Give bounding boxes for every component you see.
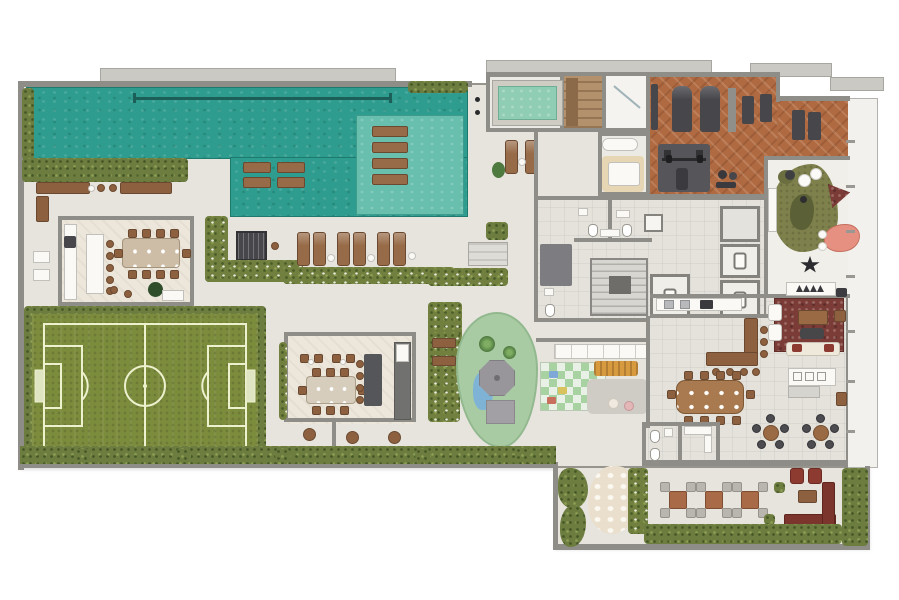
dining-table (306, 376, 356, 404)
kids-chair (818, 230, 827, 239)
sofa-cushion (792, 344, 802, 352)
in-pool-lounger (277, 177, 305, 188)
ball-pit-bench (594, 361, 638, 376)
elevator-shaft (720, 206, 760, 242)
wall (412, 332, 416, 422)
ottoman (800, 328, 824, 339)
fireplace-console (786, 282, 836, 296)
hedge-bush (275, 448, 291, 462)
kitchen-island (364, 354, 382, 406)
chair (775, 440, 784, 449)
pouf (109, 184, 117, 192)
wall (716, 422, 720, 466)
lounger-side-table (408, 252, 416, 260)
island-stool (356, 384, 364, 392)
banquet-table (676, 380, 744, 414)
chair (836, 392, 847, 406)
dining-chair (667, 390, 676, 399)
wood-planter (432, 338, 456, 348)
wall (642, 422, 646, 466)
terrace-table (705, 491, 723, 509)
round-table-group (802, 414, 840, 452)
island-stool (106, 276, 114, 284)
in-pool-lounger (277, 162, 305, 173)
fire-table (798, 490, 817, 503)
lane-end-mark (133, 93, 136, 103)
outdoor-shower-head (475, 97, 480, 102)
in-pool-lounger (372, 126, 408, 137)
terrace-chair (722, 508, 732, 518)
window-mullion (846, 430, 855, 433)
terrace-table (741, 491, 759, 509)
barbell-plate (697, 155, 703, 163)
garden-bushes (558, 468, 588, 508)
wall (574, 238, 652, 242)
weight-ball (729, 172, 737, 180)
dining-chair (312, 368, 321, 377)
dining-chair (684, 371, 693, 380)
planter-hedge (279, 342, 287, 420)
chair (825, 440, 834, 449)
round-table-group (752, 414, 790, 452)
lounge-bag (836, 288, 847, 297)
fire-armchair (790, 468, 804, 484)
grill-stool (271, 242, 279, 250)
terrace-table (669, 491, 687, 509)
pouf (97, 184, 105, 192)
vanity-counter (704, 435, 712, 453)
terrace-chair (696, 482, 706, 492)
in-pool-lounger (372, 158, 408, 169)
wall (776, 96, 850, 101)
dumbbells (716, 182, 736, 188)
dining-chair (114, 249, 123, 258)
terrace-chair (722, 482, 732, 492)
terrace-hedge-south (644, 524, 842, 544)
dining-table (122, 238, 180, 268)
exercise-bike (808, 112, 821, 140)
wall (648, 194, 772, 198)
terrace-chair (660, 482, 670, 492)
dining-chair (326, 368, 335, 377)
toilet (650, 448, 660, 461)
pool-hedge-south (22, 158, 188, 182)
dining-chair (746, 390, 755, 399)
chair (766, 414, 775, 423)
side-table (340, 359, 346, 365)
island-stool (106, 240, 114, 248)
sun-lounger (505, 140, 518, 174)
hedge-bush (75, 448, 91, 462)
wall (678, 422, 682, 466)
dining-chair (326, 406, 335, 415)
sun-lounger (353, 232, 366, 266)
side-table (834, 310, 846, 322)
toilet (588, 224, 598, 237)
dumbbell-rack (651, 84, 658, 130)
wall (486, 72, 490, 132)
coffee-table (798, 310, 828, 325)
in-pool-lounger (372, 142, 408, 153)
sun-lounger (297, 232, 310, 266)
washbasin (664, 428, 673, 437)
stair-landing (609, 276, 631, 294)
dining-chair (340, 368, 349, 377)
appliance-icon (817, 372, 826, 381)
dining-chair (156, 229, 165, 238)
terrace-table-group (732, 482, 768, 518)
wall-fixture (544, 288, 554, 296)
bean-bag (810, 168, 822, 180)
planter-hedge (428, 268, 508, 286)
terrace-chair (660, 508, 670, 518)
planter-hedge (486, 222, 508, 240)
dining-chair (700, 371, 709, 380)
wall (58, 216, 194, 220)
wall (646, 460, 848, 466)
dining-chair (312, 406, 321, 415)
sofa-cushion (824, 344, 834, 352)
in-pool-lounger (243, 177, 271, 188)
pouf (608, 398, 619, 409)
planter-square (774, 482, 785, 493)
shower-stall (644, 214, 663, 232)
island-stool (356, 372, 364, 380)
wall (598, 132, 648, 136)
outdoor-pouf (388, 431, 401, 444)
round-table (763, 425, 779, 441)
dining-chair (142, 229, 151, 238)
soccer-field-markings (32, 314, 258, 458)
dining-chair (716, 371, 725, 380)
parapet-band (830, 77, 884, 91)
toilet (650, 430, 660, 443)
pouf (624, 401, 634, 411)
kitchen-sink (664, 300, 674, 309)
chair (780, 424, 789, 433)
fire-armchair (808, 468, 822, 484)
dining-chair (128, 270, 137, 279)
toy-block (549, 371, 558, 378)
deck-bench (36, 182, 90, 194)
chair (752, 424, 761, 433)
sun-lounger (393, 232, 406, 266)
pouf (124, 290, 132, 298)
lounge-chair (314, 354, 323, 363)
potted-plant (148, 282, 163, 297)
window-mullion (846, 275, 855, 278)
window-mullion (846, 230, 855, 233)
wall (190, 216, 194, 306)
bar-stool (740, 368, 748, 376)
planter-box (33, 251, 50, 263)
dining-chair (170, 229, 179, 238)
in-pool-lounger (243, 162, 271, 173)
deck-bench (120, 182, 172, 194)
kitchen-sink (680, 300, 690, 309)
utility-cabinet (540, 244, 572, 286)
dining-chair (170, 270, 179, 279)
massage-bed (608, 162, 640, 186)
terrace-chair (686, 508, 696, 518)
bar-stool (760, 338, 768, 346)
kids-pool (498, 86, 557, 120)
vanity-counter (600, 229, 620, 237)
window-mullion (846, 330, 855, 333)
wall (534, 196, 538, 322)
dining-chair (128, 229, 137, 238)
pool-hedge-left (22, 88, 34, 160)
dining-chair (182, 249, 191, 258)
hedge-bush (175, 448, 191, 462)
window-mullion (846, 380, 855, 383)
bar-stool (752, 368, 760, 376)
round-table (813, 425, 829, 441)
wall (284, 332, 416, 336)
treadmill (672, 86, 692, 132)
side-table (518, 158, 526, 166)
appliance-icon (805, 372, 814, 381)
sun-lounger (337, 232, 350, 266)
bar-stool (760, 326, 768, 334)
kids-chair (818, 242, 827, 251)
bar-stool (760, 350, 768, 358)
wall (764, 156, 850, 160)
chair (830, 424, 839, 433)
cooktop (700, 300, 713, 309)
chair (757, 440, 766, 449)
gym-shelf (728, 88, 736, 132)
palm-tree (503, 346, 516, 359)
appliance-icon (793, 372, 802, 381)
bathtub (602, 138, 638, 151)
lounger-side-table (327, 254, 335, 262)
bar-counter (706, 352, 758, 366)
side-table (88, 185, 95, 192)
toilet (545, 304, 555, 317)
lounger-side-table (367, 254, 375, 262)
hedge-bush (415, 448, 431, 462)
roof-finial (494, 375, 500, 381)
elevator-cab-icon (734, 253, 747, 270)
toy-dot (800, 196, 807, 203)
pouf (785, 170, 795, 180)
elevator (720, 244, 760, 278)
island-stool (106, 264, 114, 272)
bbq-grill (236, 231, 267, 261)
terrace-chair (732, 508, 742, 518)
toy-shelf (768, 188, 777, 232)
shower-room (606, 76, 648, 128)
side-table (308, 359, 314, 365)
right-balcony-ledge (846, 98, 878, 468)
kitchen-island (86, 234, 104, 294)
playhouse (486, 400, 515, 424)
terrace-chair (732, 482, 742, 492)
terrace-chair (758, 482, 768, 492)
island-stool (356, 360, 364, 368)
window-mullion (846, 140, 855, 143)
terrace-chair (696, 508, 706, 518)
wall (58, 216, 62, 306)
terrace-wall-bottom (553, 544, 870, 550)
toilet (622, 224, 632, 237)
chair (807, 440, 816, 449)
gym-bench (676, 168, 688, 190)
lane-end-mark (389, 93, 392, 103)
deck-bench (36, 196, 49, 222)
island-stool (356, 396, 364, 404)
planter-box (33, 269, 50, 281)
armchair (768, 304, 782, 321)
wall-fixture (616, 210, 630, 218)
window-mullion (846, 185, 855, 188)
l-bench (822, 482, 835, 527)
terrace-table-group (660, 482, 696, 518)
dining-chair (732, 416, 741, 425)
weight-machine (760, 94, 772, 122)
counter-appliance (396, 344, 409, 362)
chair (802, 424, 811, 433)
hedge-bush (515, 447, 531, 461)
dining-chair (340, 406, 349, 415)
terrace-hedge-east (842, 468, 868, 546)
service-cart (162, 290, 184, 301)
wall (648, 72, 779, 77)
barbell-plate (666, 155, 672, 163)
wall (534, 132, 538, 198)
dining-chair (732, 371, 741, 380)
sun-lounger (377, 232, 390, 266)
lounge-chair (346, 354, 355, 363)
buffet-base (788, 386, 820, 398)
lap-lane-line (135, 97, 391, 100)
deck-steps (468, 242, 508, 266)
sauna-bench (566, 78, 578, 126)
toy-block (558, 387, 567, 394)
wall-fixture (578, 208, 588, 216)
wall (332, 420, 336, 448)
pouf (110, 286, 118, 294)
exercise-bike (792, 110, 805, 140)
weight-machine (742, 96, 754, 124)
vanity-counter (684, 426, 712, 435)
outdoor-pouf (303, 428, 316, 441)
terrace-chair (686, 482, 696, 492)
outdoor-shower-head (475, 110, 480, 115)
bean-bag (798, 174, 811, 187)
floor-plan-canvas (0, 0, 899, 600)
play-mat (587, 379, 648, 414)
weight-ball (718, 170, 727, 179)
palm-tree (479, 336, 495, 352)
dining-chair (156, 270, 165, 279)
pool-hedge-north-east (408, 81, 468, 93)
wood-planter (432, 356, 456, 366)
dining-chair (298, 386, 307, 395)
sun-lounger (313, 232, 326, 266)
chair (816, 414, 825, 423)
toy-block (547, 397, 556, 404)
treadmill (700, 86, 720, 132)
wall (646, 316, 650, 428)
outdoor-pouf (346, 431, 359, 444)
terrace-table-group (696, 482, 732, 518)
sink-unit (64, 236, 76, 248)
dining-chair (142, 270, 151, 279)
potted-plant (492, 162, 505, 178)
wall (646, 76, 650, 198)
in-pool-lounger (372, 174, 408, 185)
island-stool (106, 252, 114, 260)
armchair (768, 324, 782, 341)
